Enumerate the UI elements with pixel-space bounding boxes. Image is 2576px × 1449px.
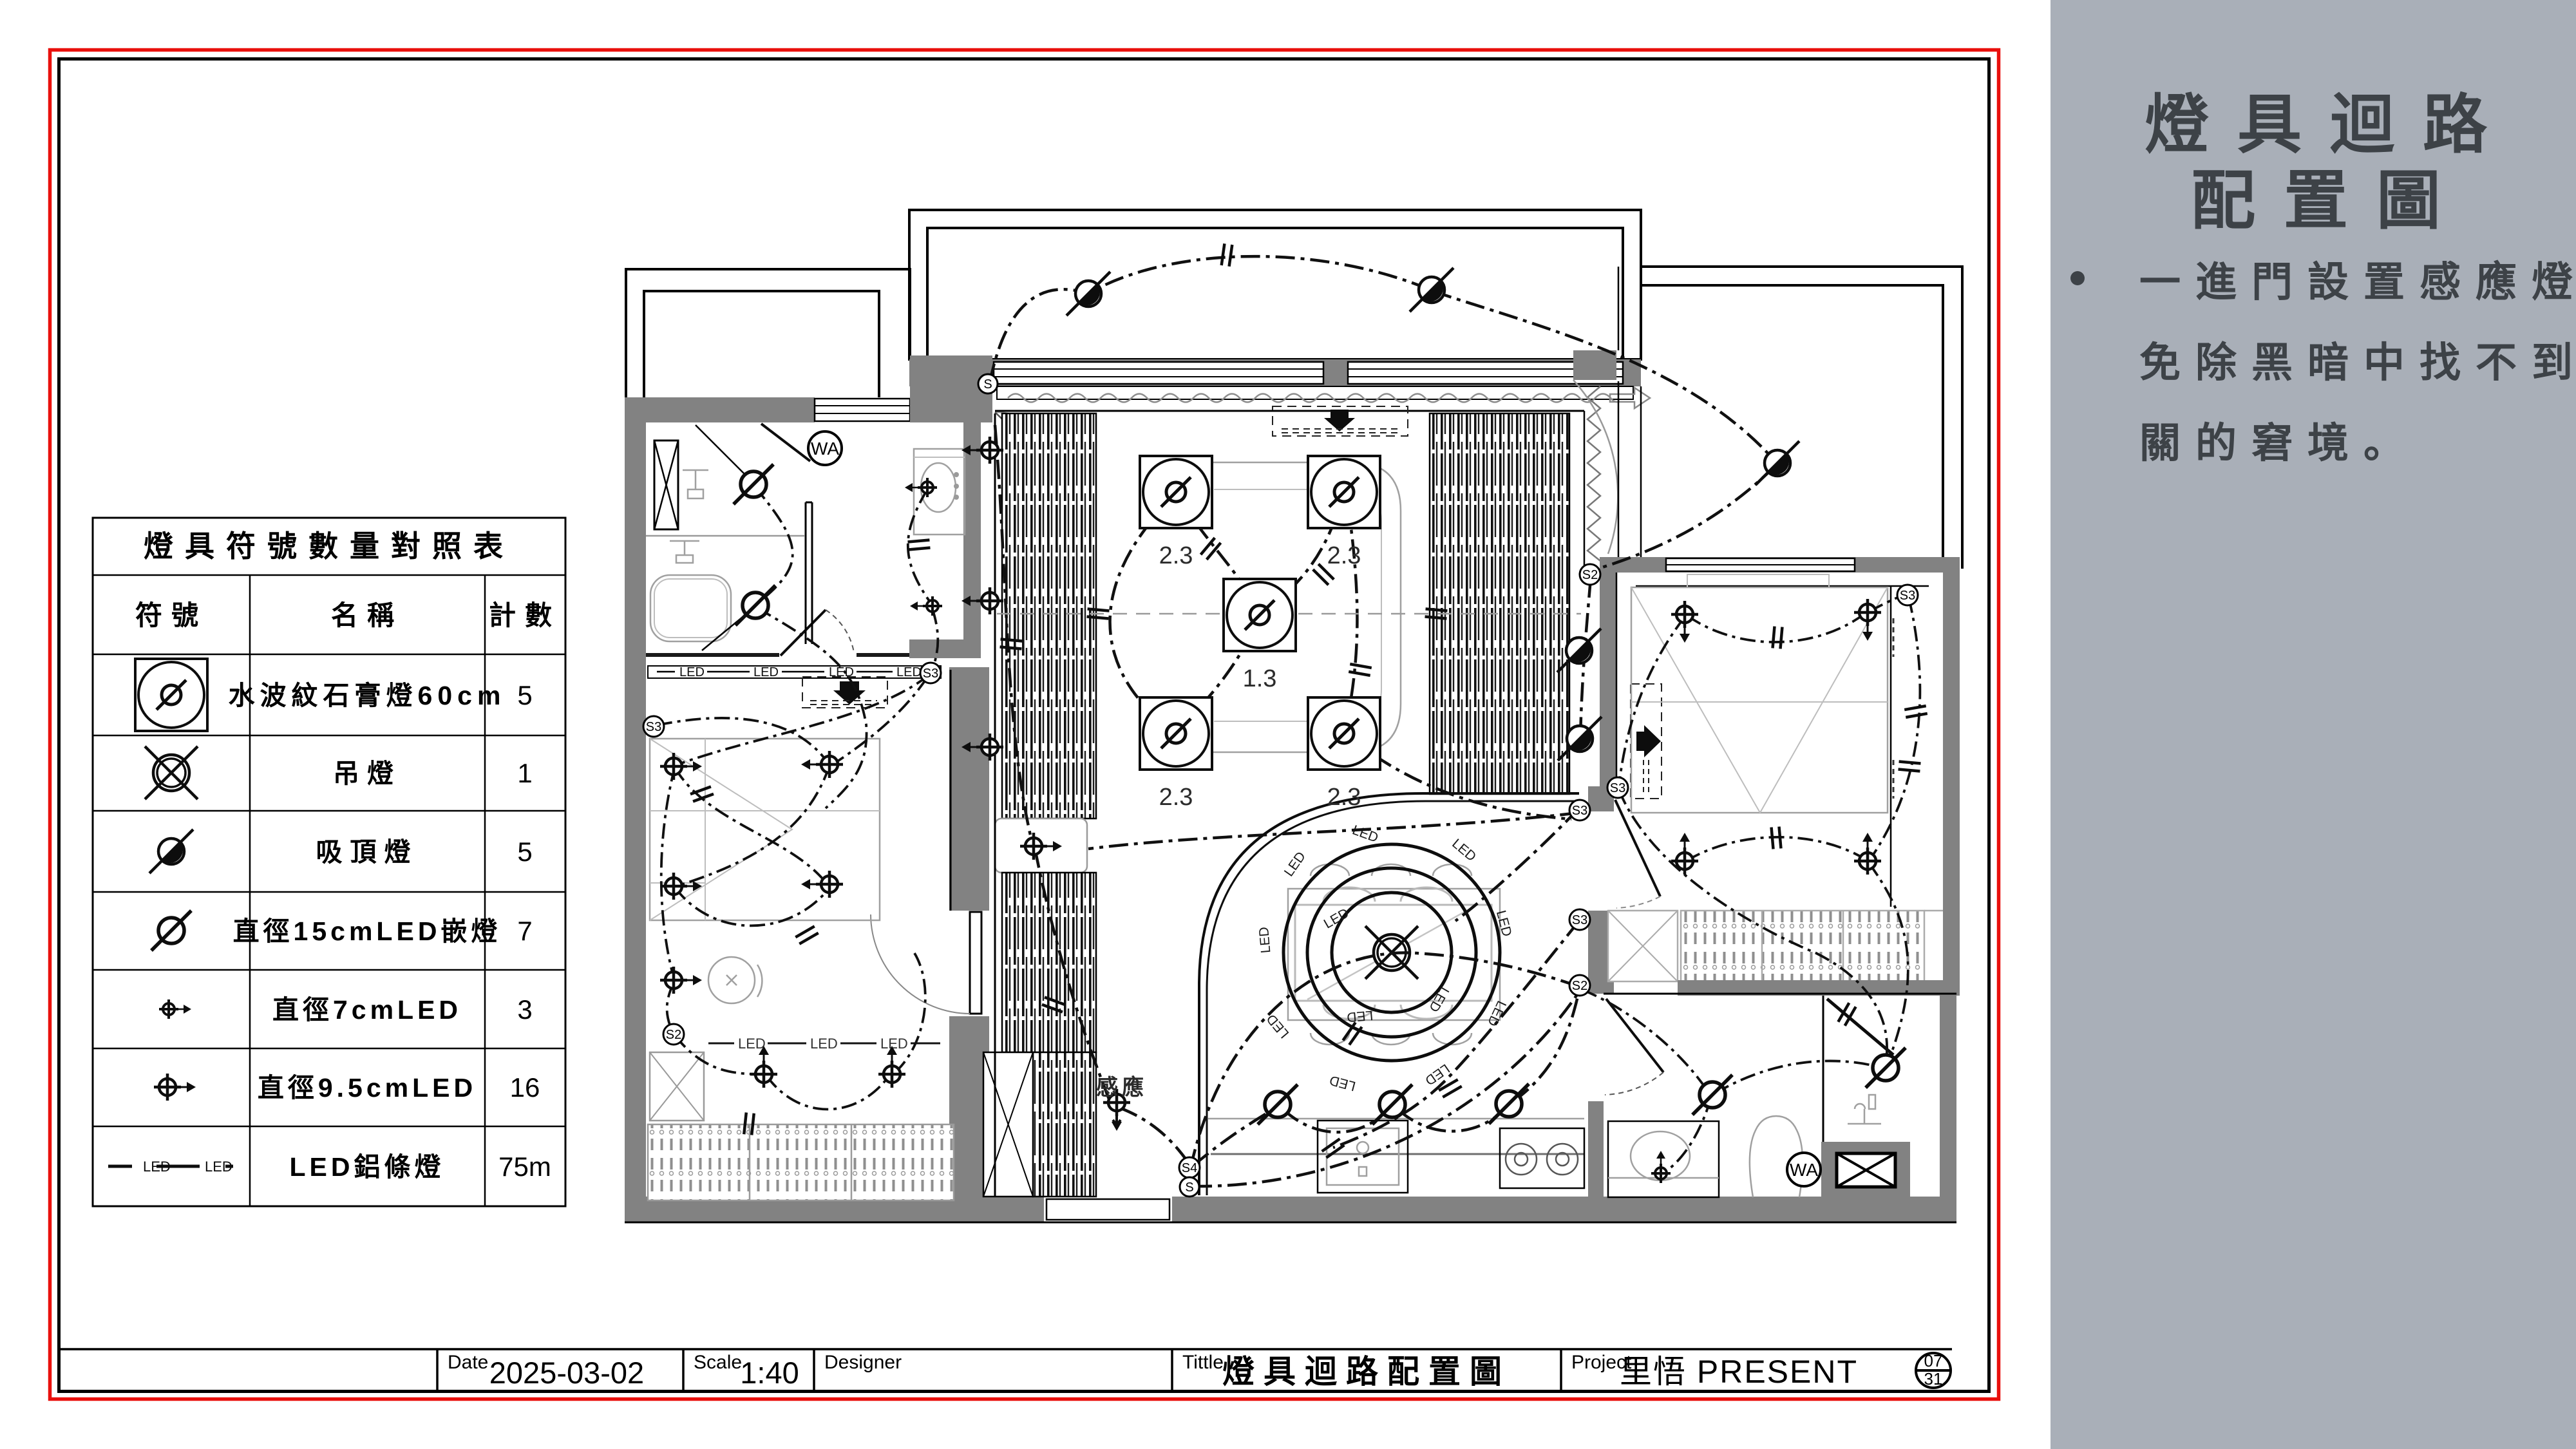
svg-text:Designer: Designer [824, 1352, 902, 1373]
svg-text:感應: 感應 [1096, 1075, 1148, 1100]
svg-text:計數: 計數 [489, 600, 561, 630]
svg-text:S3: S3 [1572, 913, 1587, 927]
svg-text:S: S [1185, 1180, 1193, 1195]
svg-text:S3: S3 [1610, 781, 1625, 795]
svg-text:31: 31 [1924, 1369, 1943, 1388]
svg-text:2025-03-02: 2025-03-02 [489, 1356, 644, 1390]
svg-text:一進門設置感應燈，: 一進門設置感應燈， [2139, 259, 2576, 305]
svg-text:吸頂燈: 吸頂燈 [316, 837, 419, 867]
svg-text:直徑9.5cmLED: 直徑9.5cmLED [258, 1073, 477, 1103]
svg-text:里悟 PRESENT: 里悟 PRESENT [1620, 1354, 1858, 1390]
svg-text:S3: S3 [646, 720, 661, 734]
svg-text:2.3: 2.3 [1159, 784, 1193, 811]
svg-text:WA: WA [811, 439, 839, 459]
svg-text:直徑15cmLED嵌燈: 直徑15cmLED嵌燈 [233, 916, 502, 946]
svg-text:7: 7 [517, 916, 532, 946]
svg-text:Date: Date [448, 1352, 488, 1373]
svg-text:S: S [983, 377, 992, 392]
svg-text:LED: LED [738, 1036, 766, 1052]
svg-text:LED: LED [143, 1159, 171, 1175]
svg-text:1: 1 [517, 758, 532, 788]
svg-text:WA: WA [1790, 1160, 1818, 1180]
svg-text:燈具迴路配置圖: 燈具迴路配置圖 [1222, 1354, 1511, 1390]
svg-text:LED: LED [1346, 1008, 1374, 1025]
svg-text:2.3: 2.3 [1159, 542, 1193, 569]
svg-text:S2: S2 [666, 1028, 681, 1042]
svg-text:16: 16 [510, 1072, 540, 1103]
svg-text:關的窘境。: 關的窘境。 [2139, 420, 2420, 466]
svg-text:S3: S3 [1572, 804, 1587, 818]
svg-text:LED: LED [810, 1036, 838, 1052]
svg-text:符號: 符號 [135, 600, 207, 630]
svg-text:2.3: 2.3 [1327, 542, 1361, 569]
svg-text:LED: LED [896, 665, 922, 679]
svg-text:吊燈: 吊燈 [333, 759, 401, 788]
svg-text:S2: S2 [1582, 568, 1598, 582]
svg-text:LED鋁條燈: LED鋁條燈 [290, 1152, 445, 1182]
svg-text:5: 5 [517, 837, 532, 867]
svg-text:配置圖: 配置圖 [2191, 165, 2469, 237]
svg-text:1:40: 1:40 [740, 1356, 799, 1390]
svg-text:LED: LED [880, 1036, 908, 1052]
svg-text:LED: LED [679, 665, 705, 679]
svg-text:Tittle: Tittle [1182, 1352, 1224, 1373]
svg-text:燈具符號數量對照表: 燈具符號數量對照表 [144, 529, 515, 563]
svg-text:S3: S3 [1900, 589, 1915, 603]
svg-text:75m: 75m [498, 1151, 551, 1182]
svg-text:名稱: 名稱 [331, 600, 403, 630]
svg-text:直徑7cmLED: 直徑7cmLED [272, 995, 462, 1025]
svg-text:燈具迴路: 燈具迴路 [2145, 89, 2515, 161]
svg-text:07: 07 [1924, 1351, 1943, 1370]
svg-text:LED: LED [1256, 926, 1273, 954]
svg-text:S2: S2 [1572, 979, 1587, 993]
svg-text:免除黑暗中找不到開: 免除黑暗中找不到開 [2139, 339, 2576, 386]
svg-text:2.3: 2.3 [1327, 784, 1361, 811]
svg-text:LED: LED [753, 665, 779, 679]
svg-text:水波紋石膏燈60cm: 水波紋石膏燈60cm [229, 681, 506, 710]
svg-text:5: 5 [517, 680, 532, 710]
svg-text:Scale: Scale [694, 1352, 742, 1373]
svg-text:S4: S4 [1182, 1161, 1197, 1175]
svg-text:1.3: 1.3 [1243, 665, 1277, 692]
svg-text:LED: LED [205, 1159, 232, 1175]
svg-text:3: 3 [517, 994, 532, 1025]
svg-text:S3: S3 [923, 667, 938, 681]
